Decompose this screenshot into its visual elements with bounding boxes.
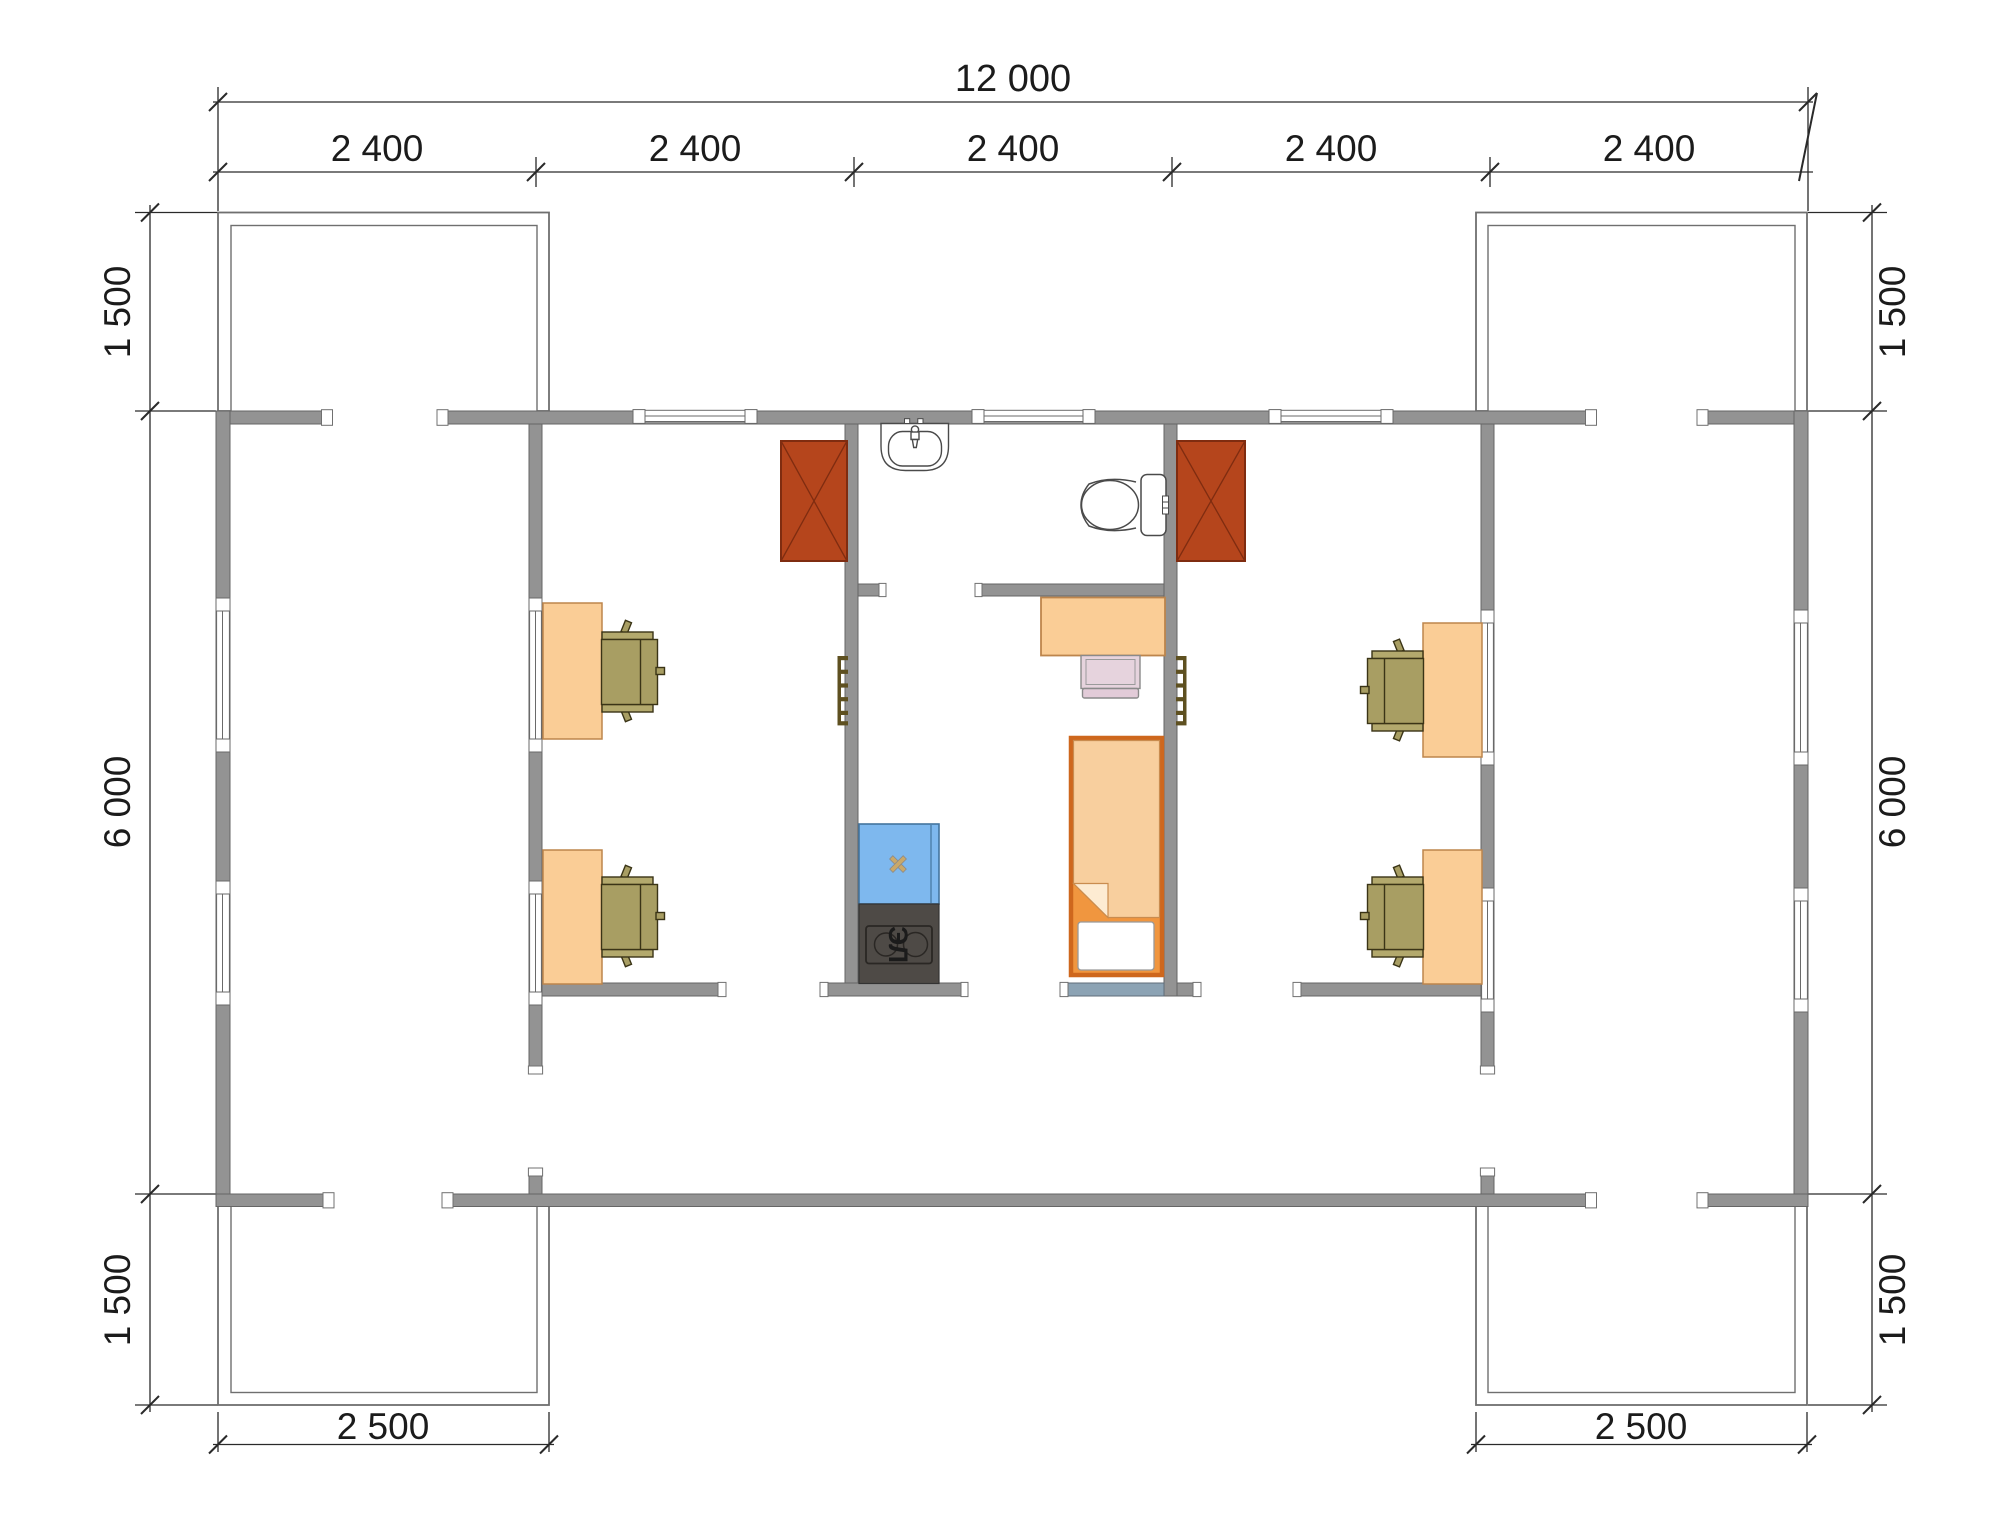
svg-text:12 000: 12 000 <box>955 58 1071 100</box>
svg-text:1 500: 1 500 <box>1872 1254 1913 1347</box>
svg-text:1 500: 1 500 <box>1872 266 1913 359</box>
svg-text:2 400: 2 400 <box>967 128 1060 169</box>
svg-text:2 400: 2 400 <box>331 128 424 169</box>
svg-text:2 400: 2 400 <box>1285 128 1378 169</box>
svg-text:6 000: 6 000 <box>1872 756 1913 849</box>
svg-text:1 500: 1 500 <box>97 266 138 359</box>
svg-text:6 000: 6 000 <box>97 756 138 849</box>
svg-text:2 500: 2 500 <box>1595 1406 1688 1447</box>
svg-text:2 500: 2 500 <box>337 1406 430 1447</box>
svg-text:1 500: 1 500 <box>97 1254 138 1347</box>
svg-text:2 400: 2 400 <box>1603 128 1696 169</box>
svg-text:2 400: 2 400 <box>649 128 742 169</box>
svg-text:ЭЛ: ЭЛ <box>883 926 913 963</box>
